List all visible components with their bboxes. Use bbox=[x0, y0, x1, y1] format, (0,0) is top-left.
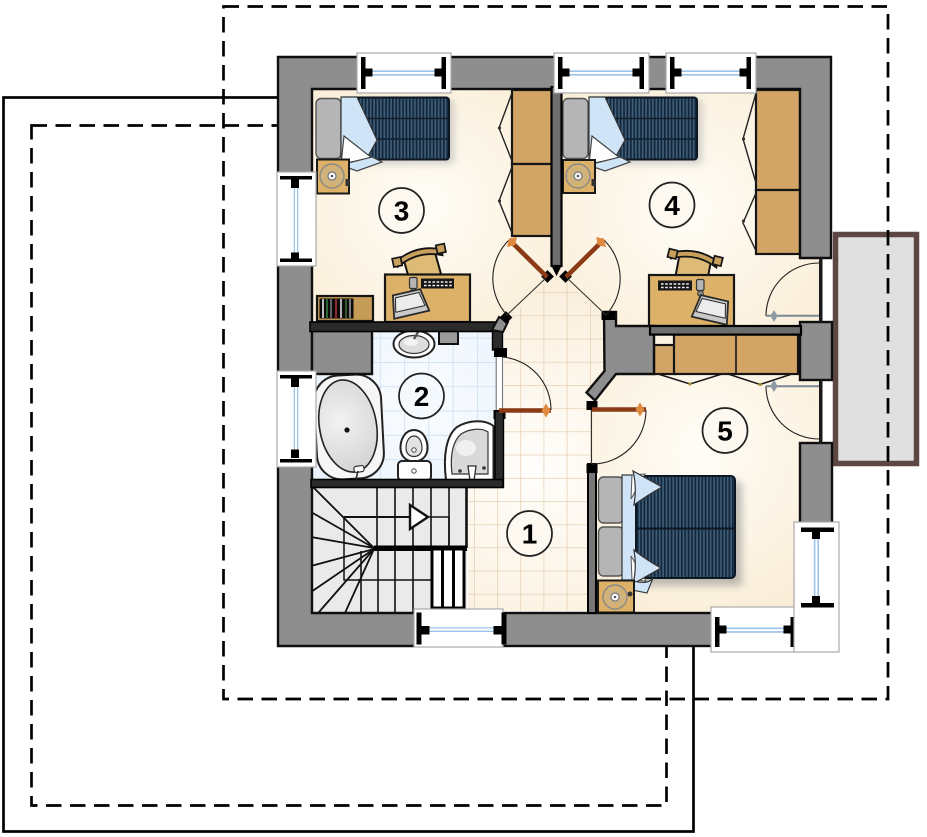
svg-text:5: 5 bbox=[717, 416, 733, 447]
svg-text:2: 2 bbox=[414, 381, 430, 412]
svg-text:3: 3 bbox=[394, 196, 410, 227]
svg-text:4: 4 bbox=[664, 190, 680, 221]
svg-text:1: 1 bbox=[522, 519, 538, 550]
